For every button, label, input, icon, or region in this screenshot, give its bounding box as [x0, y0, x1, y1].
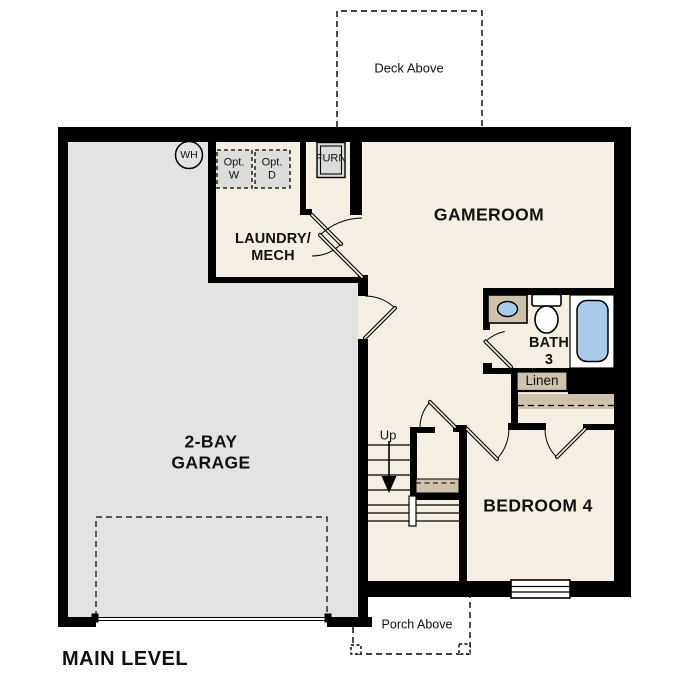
- porch-above-label: Porch Above: [382, 618, 453, 633]
- floor-plan: Deck Above GAMEROOM LAUNDRY/ MECH 2-BAY …: [0, 0, 687, 687]
- bedroom-window: [511, 580, 570, 598]
- optional-dryer-label: Opt. D: [262, 156, 283, 181]
- toilet: [532, 295, 561, 334]
- furnace-label: FURN: [316, 153, 347, 166]
- bath-label: BATH 3: [529, 335, 569, 369]
- laundry-label: LAUNDRY/ MECH: [235, 231, 311, 265]
- bedroom-closet: [518, 394, 614, 409]
- linen-label: Linen: [525, 373, 558, 389]
- stair-closet-shelf: [416, 479, 459, 493]
- page-title: MAIN LEVEL: [62, 648, 188, 671]
- garage-label: 2-BAY GARAGE: [171, 431, 250, 472]
- bedroom-label: BEDROOM 4: [483, 496, 593, 517]
- sink: [498, 302, 518, 317]
- porch-post: [459, 644, 470, 654]
- deck-above-label: Deck Above: [374, 60, 443, 75]
- floor-plan-drawing: [0, 0, 687, 687]
- gameroom-label: GAMEROOM: [434, 205, 544, 226]
- porch-post: [351, 645, 361, 654]
- optional-washer-label: Opt. W: [224, 156, 245, 181]
- stairs-up-label: Up: [380, 427, 397, 442]
- bathtub: [570, 295, 614, 368]
- water-heater-label: WH: [180, 149, 198, 161]
- stair-handrail: [409, 496, 416, 526]
- vanity-counter: [488, 295, 527, 323]
